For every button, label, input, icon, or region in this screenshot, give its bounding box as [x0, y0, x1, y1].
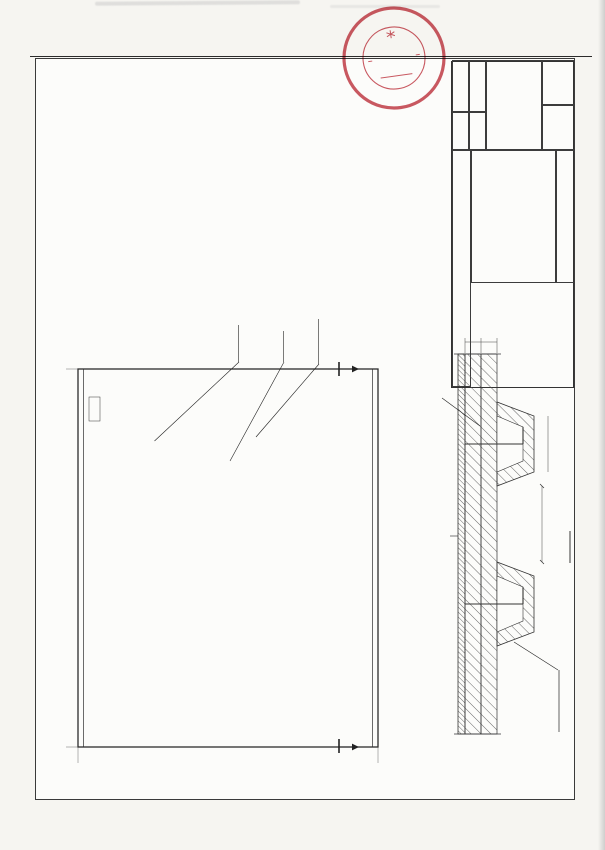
- fireside-label: [514, 642, 559, 732]
- layer-thickness-dims: [465, 338, 497, 353]
- leader-line: [155, 362, 240, 441]
- scan-edge-shadow: [598, 0, 605, 850]
- stage-value-empty: [469, 60, 486, 112]
- total-label: [542, 60, 575, 105]
- section-cut-arrow: [339, 739, 359, 753]
- inside-joints-label: [230, 331, 284, 461]
- header-underline: [30, 56, 592, 57]
- section-a-a-view: [422, 332, 572, 794]
- stage-label: [469, 112, 486, 150]
- project-name-label: [452, 112, 469, 150]
- drawing-number: [486, 60, 542, 150]
- welded-pin-label: [256, 319, 319, 437]
- scan-smudge: [95, 0, 300, 5]
- classnk-stamp: [331, 0, 457, 121]
- professional-label: [556, 150, 575, 283]
- insulation-layer-2: [481, 354, 497, 734]
- panel-outline: [78, 369, 378, 747]
- leader-line: [230, 362, 284, 461]
- insulation-layer-1: [465, 354, 481, 734]
- page-label: [542, 105, 575, 150]
- drawing-title: [471, 150, 556, 283]
- leader-line: [514, 642, 558, 670]
- outside-joints-label: [155, 325, 240, 441]
- scanned-certificate-page: [0, 0, 605, 850]
- bulkhead-plan-view: [44, 276, 409, 793]
- stiffener-spacing-dim: [540, 484, 544, 564]
- ship-plate: [458, 354, 465, 734]
- drawing-sheet: [35, 58, 575, 800]
- local-dim-200: [89, 397, 100, 421]
- section-cut-arrow: [339, 362, 359, 376]
- leader-line: [256, 364, 319, 437]
